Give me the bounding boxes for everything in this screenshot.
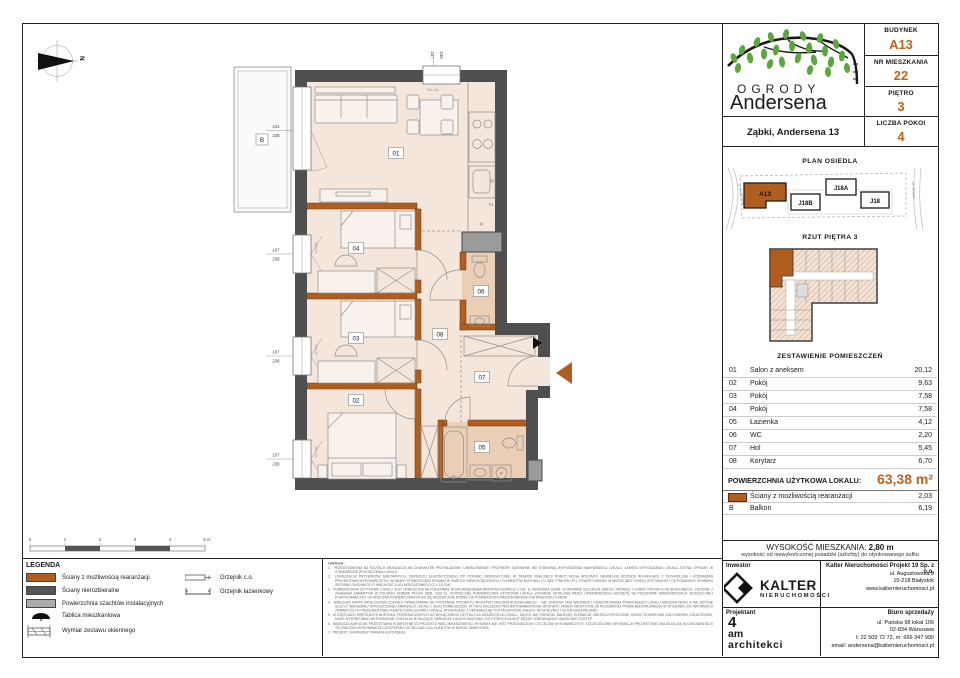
- svg-text:5x91,5b: 5x91,5b: [314, 344, 318, 356]
- svg-text:2: 2: [99, 537, 102, 542]
- table-row: 01Salon z aneksem20,12: [723, 364, 937, 378]
- legend-swatch-fixed: [26, 586, 56, 595]
- site-plan-title: PLAN OSIEDLA: [722, 158, 938, 165]
- table-row: 02Pokój9,63: [723, 377, 937, 391]
- note-item: 6. NINIEJSZA KARTA NIE PRZEDSTAWIA KOMPL…: [328, 622, 713, 630]
- designer-am: am: [728, 629, 743, 639]
- kitchen-shaft: [462, 232, 502, 252]
- room-label-07: 07: [478, 375, 486, 382]
- kalter-name: KALTER: [760, 578, 817, 593]
- washer-label: P: [500, 471, 503, 476]
- info-board-icon: [30, 611, 52, 621]
- company-addr2: 15-218 Białystok: [822, 578, 934, 586]
- svg-text:238: 238: [272, 359, 280, 364]
- total-value: 63,38 m²: [877, 471, 933, 487]
- building-a13-label: A13: [759, 191, 771, 198]
- legend-item: Ściany nierozbieralne: [62, 588, 119, 594]
- legend-item: Grzejnik c.o.: [220, 575, 253, 581]
- apartment-height: WYSOKOŚĆ MIESZKANIA: 2,80 m: [722, 543, 938, 552]
- desk: [318, 271, 375, 293]
- designer-architekci: architekci: [728, 640, 783, 651]
- double-bed: [328, 413, 396, 479]
- legend-item: Tablica mieszkaniowa: [62, 613, 120, 619]
- table-row: 05Łazienka4,12: [723, 416, 937, 430]
- total-label: POWIERZCHNIA UŻYTKOWA LOKALU:: [728, 476, 861, 485]
- divider: [722, 146, 938, 147]
- legend-item: Grzejnik łazienkowy: [220, 589, 273, 595]
- budynek-value: A13: [864, 37, 938, 52]
- note-item: 3. POWIERZCHNIA UŻYTKOWA LOKALU JEST OKR…: [328, 588, 713, 600]
- floor-thumb-title: RZUT PIĘTRA 3: [722, 234, 938, 241]
- site-plan-map: ul. Andersena ul. Skrajna A13 J18B J18A …: [722, 168, 938, 230]
- entrance-marker-icon: [556, 362, 572, 384]
- bathroom-shaft: [528, 460, 542, 481]
- brand-name-bottom: Andersena: [730, 92, 827, 115]
- dishwasher-label: Z: [487, 203, 493, 206]
- note-item: 1. PRZEDSTAWIONA NA RZUTACH ARANŻACJA MA…: [328, 567, 713, 575]
- sofa: [315, 95, 397, 123]
- svg-text:5x91,5b: 5x91,5b: [314, 242, 318, 254]
- pokoje-value: 4: [864, 129, 938, 144]
- room02-furniture: [318, 413, 406, 479]
- divider: [864, 55, 938, 56]
- notes-title: UWAGA:: [328, 561, 713, 566]
- rearrangeable-wall-swatch: [728, 493, 747, 502]
- table-row: 03Pokój7,58: [723, 390, 937, 404]
- svg-text:107: 107: [272, 248, 280, 253]
- building-j18b-label: J18B: [798, 201, 813, 207]
- svg-text:107: 107: [430, 51, 435, 59]
- pietro-value: 3: [864, 99, 938, 114]
- svg-text:238: 238: [272, 257, 280, 262]
- room-label-02: 02: [352, 398, 360, 405]
- rooms-table-title: ZESTAWIENIE POMIESZCZEŃ: [722, 353, 938, 360]
- legend-item: Powierzchnia szachtów instalacyjnych: [62, 601, 163, 607]
- room-label-05: 05: [478, 445, 486, 452]
- notes-section: UWAGA: 1. PRZEDSTAWIONA NA RZUTACH ARANŻ…: [328, 561, 720, 655]
- svg-text:241: 241: [272, 124, 280, 129]
- balkon-row: B Balkon 6,19: [723, 502, 937, 515]
- street-right-label: ul. Skrajna: [911, 182, 916, 199]
- legend-swatch-shaft: [26, 599, 56, 608]
- note-item: 5. W CZĘŚCIACH WSPÓLNYCH BUDYNKU, PRZEZN…: [328, 614, 713, 622]
- north-arrow-icon: [38, 53, 74, 70]
- svg-text:238: 238: [272, 462, 280, 467]
- budynek-label: BUDYNEK: [864, 27, 938, 34]
- table-row: 06WC2,20: [723, 429, 937, 443]
- brand-tree-logo: [724, 24, 864, 86]
- legend-title: LEGENDA: [26, 562, 60, 569]
- kalter-sub: NIERUCHOMOŚCI: [760, 593, 831, 599]
- svg-text:5 m: 5 m: [203, 537, 211, 542]
- desk: [318, 361, 375, 383]
- company-www: www.kalternieruchomosci.pl: [822, 586, 934, 594]
- north-compass: N: [36, 40, 85, 82]
- building-j18-label: J18: [870, 199, 881, 205]
- radiator-icon: [185, 574, 213, 582]
- balcony-label: B: [260, 137, 264, 144]
- mieszkanie-value: 22: [864, 68, 938, 83]
- kalter-logo-icon: [724, 572, 758, 604]
- legend-swatch-rearrangeable: [26, 573, 56, 582]
- rooms-table: 01Salon z aneksem20,12 02Pokój9,63 03Pok…: [723, 364, 937, 468]
- project-address: Ząbki, Andersena 13: [722, 127, 864, 138]
- towel-radiator-icon: [185, 588, 213, 596]
- svg-text:5x91,5b: 5x91,5b: [314, 446, 318, 458]
- note-item: 2. LOKALIZACJE PRZYBORÓW SANITARNYCH, OS…: [328, 575, 713, 587]
- svg-text:5x91,5b: 5x91,5b: [427, 88, 439, 92]
- biuro-label: Biuro sprzedaży: [822, 610, 934, 616]
- table-row: 08Korytarz6,70: [723, 455, 937, 469]
- svg-text:3: 3: [134, 537, 137, 542]
- svg-text:107: 107: [272, 350, 280, 355]
- svg-text:238: 238: [439, 51, 444, 59]
- mieszkanie-label: NR MIESZKANIA: [864, 59, 938, 66]
- building-j18a-label: J18A: [834, 186, 849, 192]
- fridge-icon: ✳: [479, 221, 484, 228]
- north-label: N: [78, 56, 85, 61]
- svg-text:238: 238: [272, 133, 280, 138]
- legend-item: Ściany z możliwością rearanżacji: [62, 575, 150, 581]
- height-note: wysokość od niewykończonej posadzki (szl…: [722, 552, 938, 558]
- pietro-label: PIĘTRO: [864, 90, 938, 97]
- floor-plan-drawing: N B: [22, 23, 722, 556]
- legend-item: Wymiar zestawu okiennego: [62, 628, 135, 634]
- divider: [722, 116, 938, 117]
- apartment-card-page: N B: [0, 0, 960, 678]
- room-label-01: 01: [392, 151, 400, 158]
- window-dimension-icon: [27, 623, 53, 641]
- svg-text:107: 107: [272, 453, 280, 458]
- biuro-addr2: 02-834 Warszawa: [822, 627, 934, 635]
- scale-bar: 0 1 2 3 4 5 m: [29, 537, 211, 551]
- pokoje-label: LICZBA POKOI: [864, 120, 938, 127]
- room-label-03: 03: [352, 336, 360, 343]
- biuro-email: email: andersena@kalternieruchomosci.pl: [822, 643, 934, 651]
- svg-text:0: 0: [29, 537, 32, 542]
- svg-text:1: 1: [64, 537, 67, 542]
- note-item: 4. NINIEJSZA KARTA KATALOGOWA ZOSTAŁA OP…: [328, 601, 713, 613]
- svg-text:4: 4: [169, 537, 172, 542]
- table-row: 07Hol5,45: [723, 442, 937, 456]
- inwestor-label: Inwestor: [726, 563, 751, 569]
- table-row: 04Pokój7,58: [723, 403, 937, 417]
- note-item: 7. PROJEKT CHRONIONY PRAWEM AUTORSKIM.: [328, 631, 713, 635]
- tv-sideboard: [320, 189, 387, 202]
- total-area-row: POWIERZCHNIA UŻYTKOWA LOKALU: 63,38 m²: [723, 468, 937, 491]
- room-label-04: 04: [352, 246, 360, 253]
- room-label-08: 08: [436, 332, 444, 339]
- room-label-06: 06: [477, 289, 485, 296]
- biuro-phone: t: 22 509 72 72, m: 666 347 990: [822, 635, 934, 643]
- floor-thumbnail: [722, 243, 938, 347]
- divider: [864, 86, 938, 87]
- balcony: B: [234, 67, 291, 212]
